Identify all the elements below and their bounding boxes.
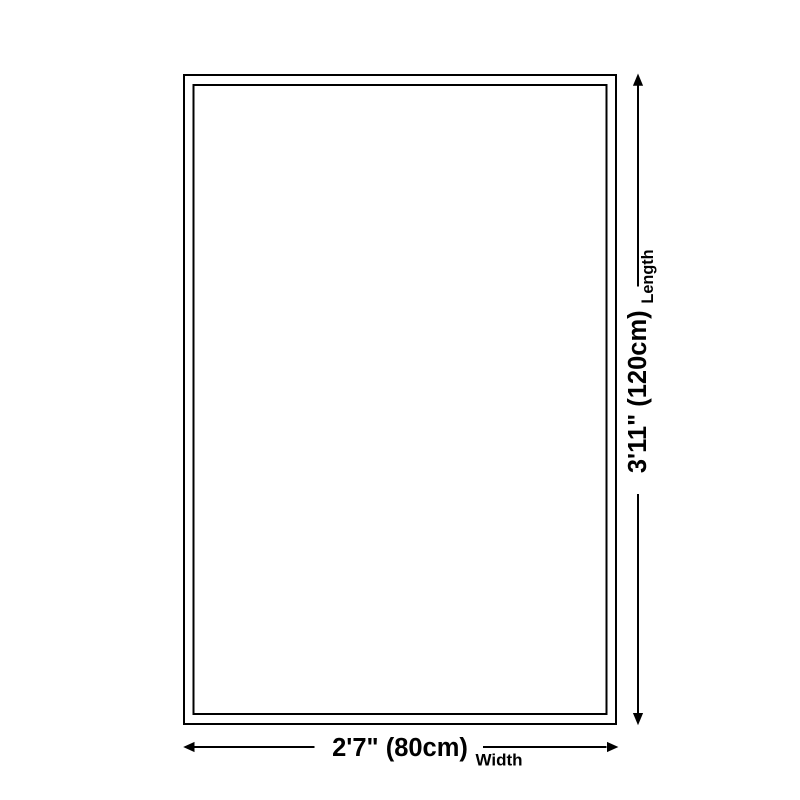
- svg-text:3'11" (120cm): 3'11" (120cm): [624, 310, 652, 473]
- svg-text:2'7" (80cm): 2'7" (80cm): [332, 734, 468, 762]
- svg-text:Width: Width: [475, 751, 522, 770]
- svg-text:Length: Length: [639, 249, 657, 303]
